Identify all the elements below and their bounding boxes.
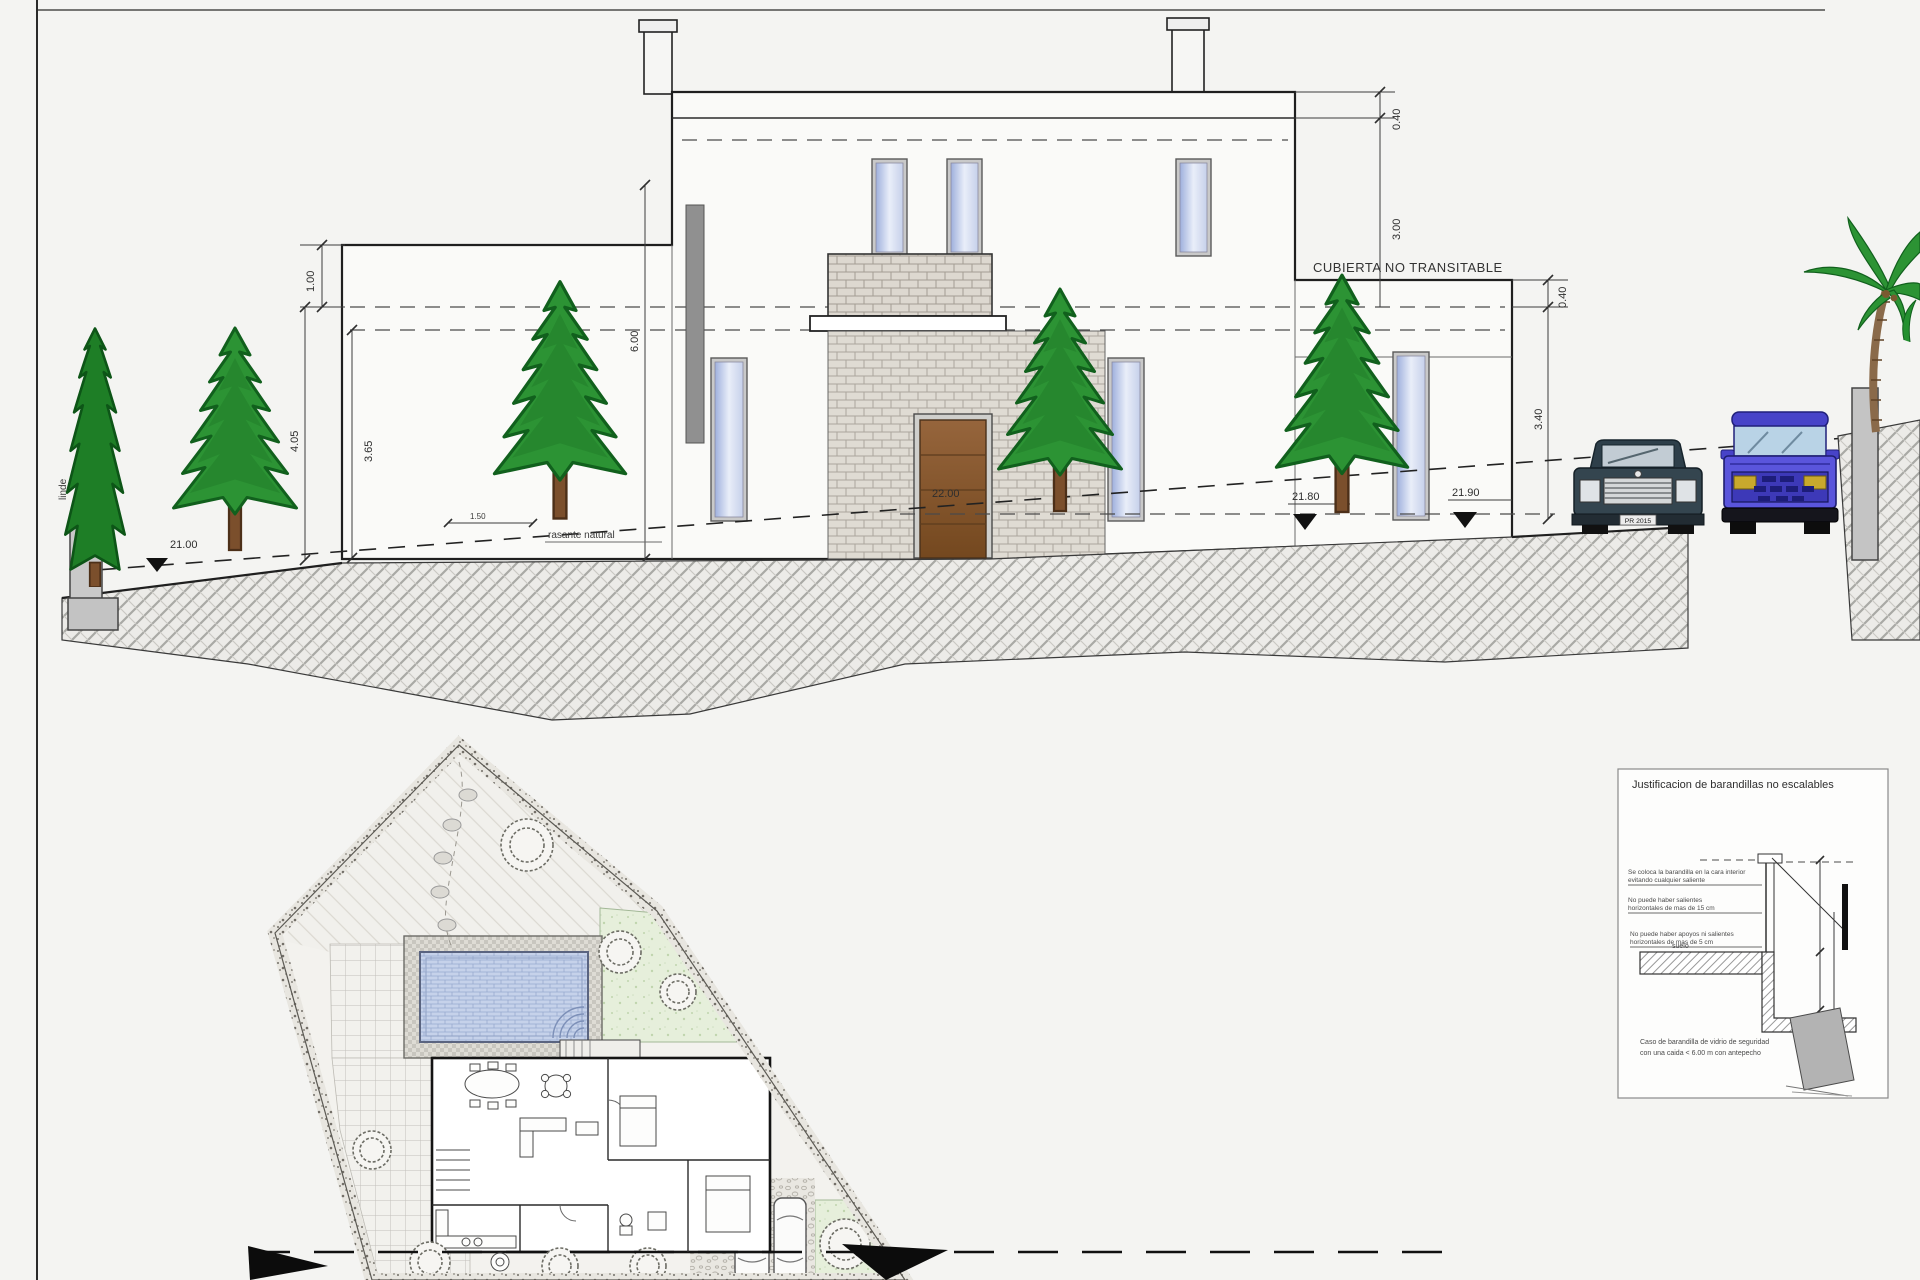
entrance-recess-shadow <box>686 205 704 443</box>
dim-upper-floor-height: 3.00 <box>1391 219 1403 240</box>
entrance-level-label: 22.00 <box>932 488 960 500</box>
drawing-svg: 22.00 1.00 4.05 3.65 6.00 0.40 3.00 CUBI… <box>0 0 1920 1280</box>
dim-lower-roof-edge: 0.40 <box>1557 287 1569 308</box>
level-plot-corner: 21.00 <box>170 539 198 551</box>
note-2a: No puede haber salientes <box>1628 897 1703 904</box>
dim-facade-height: 6.00 <box>629 331 641 352</box>
level-street-right: 21.90 <box>1452 487 1480 499</box>
railing-detail-box: Justificacion de barandillas no escalabl… <box>1618 769 1888 1098</box>
swimming-pool <box>420 952 588 1042</box>
dim-lower-floor-height: 3.40 <box>1533 409 1545 430</box>
note-1a: Se coloca la barandilla en la cara inter… <box>1628 869 1746 876</box>
pine-tree-1 <box>174 328 297 550</box>
detail-caption-1: Caso de barandilla de vidrio de segurida… <box>1640 1039 1769 1046</box>
cypress-tree <box>65 328 124 587</box>
natural-grade-label: rasante natural <box>548 530 615 541</box>
plan-car-2 <box>774 1198 806 1280</box>
suv-car <box>1721 412 1839 534</box>
roof-label: CUBIERTA NO TRANSITABLE <box>1313 260 1503 275</box>
dim-left-wall: 4.05 <box>289 431 301 452</box>
entrance-canopy <box>810 316 1006 331</box>
license-plate: PR 2015 <box>1625 518 1652 525</box>
chimneys <box>639 18 1209 94</box>
elevation-view: 22.00 1.00 4.05 3.65 6.00 0.40 3.00 CUBI… <box>58 18 1920 720</box>
detail-caption-2: con una caida < 6.00 m con antepecho <box>1640 1050 1761 1057</box>
note-1b: evitando cualquier saliente <box>1628 877 1705 884</box>
note-3a: No puede haber apoyos ni salientes <box>1630 931 1734 938</box>
dim-grade-offset: 1.50 <box>470 512 486 521</box>
terrace-tiles-left <box>330 944 404 1058</box>
neighbor-terrain <box>1838 420 1920 640</box>
floor-label: suelo <box>1672 943 1689 950</box>
stone-clad-band <box>828 254 992 316</box>
note-2b: horizontales de mas de 15 cm <box>1628 905 1715 912</box>
architectural-drawing-sheet: 22.00 1.00 4.05 3.65 6.00 0.40 3.00 CUBI… <box>0 0 1920 1280</box>
sedan-car: PR 2015 <box>1572 440 1704 534</box>
dim-upper-roof-edge: 0.40 <box>1391 109 1403 130</box>
level-street-left: 21.80 <box>1292 491 1320 503</box>
dim-left-parapet: 1.00 <box>305 271 317 292</box>
floor-plan <box>432 1040 770 1271</box>
site-plan <box>248 745 1445 1280</box>
dim-left-interior: 3.65 <box>363 441 375 462</box>
detail-title: Justificacion de barandillas no escalabl… <box>1632 779 1834 791</box>
